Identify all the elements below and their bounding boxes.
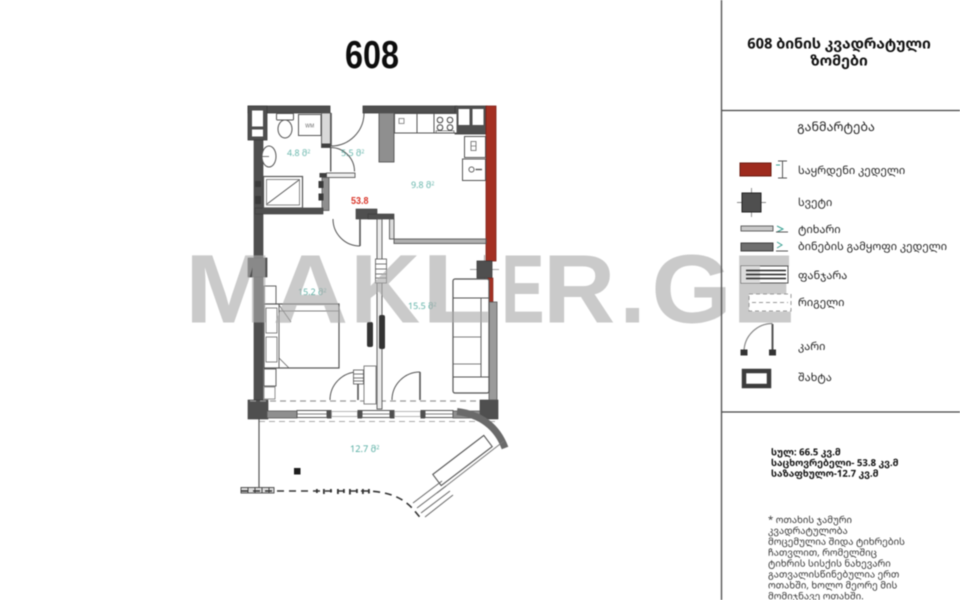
- svg-text:L: L: [422, 235, 492, 344]
- svg-text:53.8: 53.8: [351, 195, 369, 207]
- svg-text:608: 608: [345, 34, 399, 77]
- svg-text:E: E: [501, 235, 544, 344]
- svg-text:G: G: [651, 235, 732, 344]
- svg-text:A: A: [273, 235, 349, 344]
- svg-text:R: R: [543, 235, 615, 344]
- svg-text:.: .: [620, 235, 646, 344]
- svg-text:WM: WM: [305, 124, 314, 130]
- svg-text:K: K: [350, 235, 420, 344]
- svg-text:M: M: [185, 235, 272, 344]
